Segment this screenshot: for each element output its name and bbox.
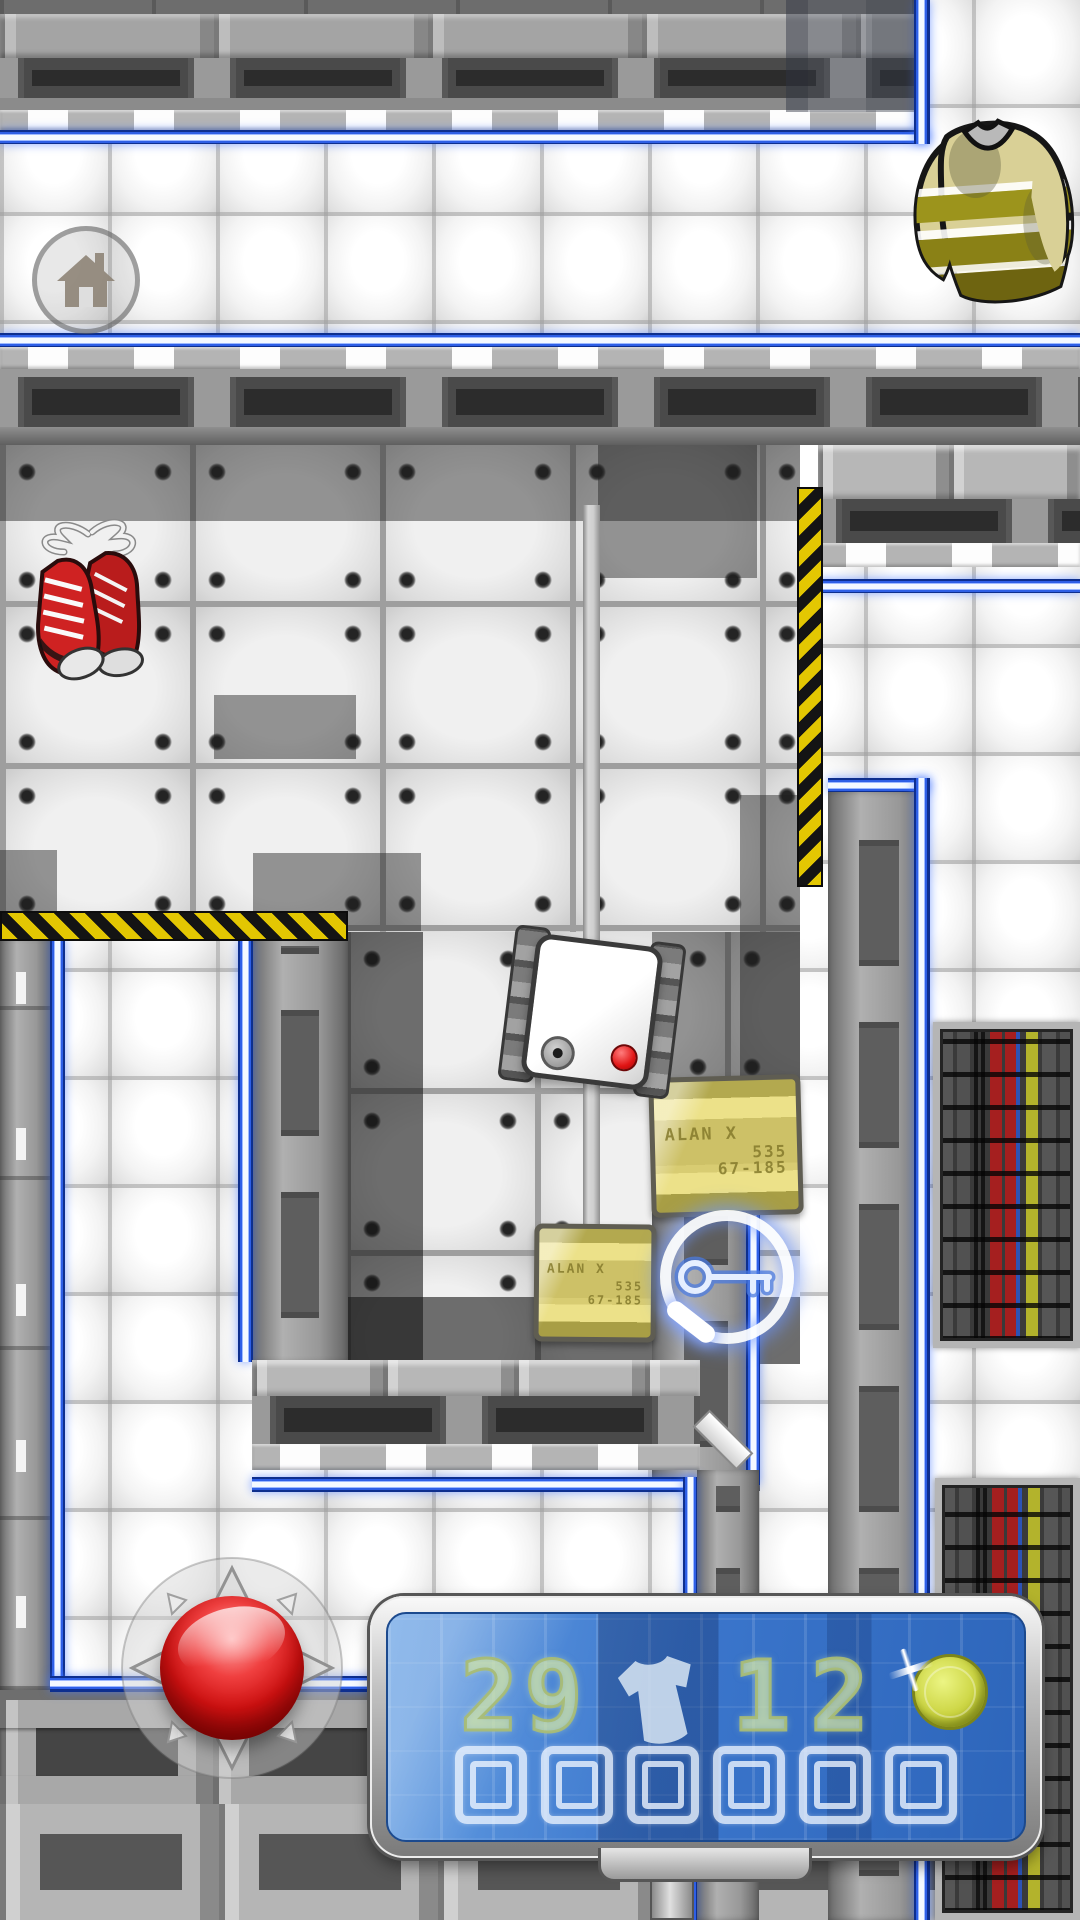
machinery-overlay bbox=[786, 0, 914, 112]
neon-line bbox=[0, 130, 930, 144]
wall-mid-right bbox=[818, 445, 1080, 593]
sneakers-pickup bbox=[18, 512, 168, 697]
crate-code: 67-185 bbox=[588, 1293, 643, 1307]
neon-line bbox=[818, 579, 1080, 593]
wall-inner-bottom bbox=[252, 1360, 700, 1492]
shadow-block bbox=[214, 695, 356, 759]
score-digit: 0 bbox=[541, 1746, 613, 1824]
wall-left-column bbox=[0, 938, 52, 1690]
wall-divider-column bbox=[252, 930, 348, 1362]
score-digit: 0 bbox=[455, 1746, 527, 1824]
hazard-stripe-horizontal bbox=[0, 911, 348, 941]
key-icon bbox=[660, 1210, 794, 1344]
crate-code: 535 bbox=[615, 1279, 643, 1293]
hazard-stripe-vertical bbox=[797, 487, 823, 887]
wall-mid bbox=[0, 333, 1080, 445]
wall-lights bbox=[0, 347, 1080, 369]
vent-grate-panel bbox=[933, 1022, 1080, 1348]
hud-screen: 29 12 0 0 0 0 0 0 bbox=[386, 1612, 1026, 1842]
score-digit: 0 bbox=[885, 1746, 957, 1824]
game-viewport: ALAN X 535 67-185 ALAN X 535 67-185 bbox=[0, 0, 1080, 1920]
crate: ALAN X 535 67-185 bbox=[533, 1223, 656, 1342]
crate-code: 67-185 bbox=[718, 1157, 788, 1178]
wall-lights bbox=[252, 1444, 700, 1470]
crate-label: ALAN X bbox=[664, 1124, 738, 1146]
score-digit: 0 bbox=[627, 1746, 699, 1824]
sweater-pickup bbox=[900, 108, 1080, 313]
wall-lights bbox=[0, 110, 930, 130]
robot-body bbox=[520, 933, 665, 1092]
neon-line bbox=[252, 1477, 698, 1492]
gems-counter: 12 bbox=[732, 1648, 889, 1745]
wall-lights bbox=[818, 543, 1080, 567]
robot-track bbox=[583, 505, 600, 1305]
home-icon bbox=[53, 249, 119, 311]
t-shirt-icon bbox=[609, 1646, 707, 1756]
hud-chin bbox=[598, 1848, 812, 1882]
crate-label: ALAN X bbox=[547, 1262, 606, 1278]
neon-line bbox=[50, 938, 65, 1690]
robot-player bbox=[496, 918, 687, 1106]
neon-line bbox=[0, 333, 1080, 347]
home-button[interactable] bbox=[32, 226, 140, 334]
joystick[interactable] bbox=[120, 1556, 344, 1780]
neon-line bbox=[238, 940, 253, 1362]
shadow-block bbox=[598, 445, 757, 578]
hud: 29 12 0 0 0 0 0 0 bbox=[370, 1596, 1042, 1920]
hud-stand bbox=[650, 1880, 694, 1920]
score-digit: 0 bbox=[713, 1746, 785, 1824]
score-display: 0 0 0 0 0 0 bbox=[388, 1746, 1024, 1824]
wall-top bbox=[0, 0, 930, 144]
crate: ALAN X 535 67-185 bbox=[648, 1074, 804, 1218]
joystick-red-ball[interactable] bbox=[160, 1596, 304, 1740]
shirts-counter: 29 bbox=[460, 1648, 589, 1745]
score-digit: 0 bbox=[799, 1746, 871, 1824]
